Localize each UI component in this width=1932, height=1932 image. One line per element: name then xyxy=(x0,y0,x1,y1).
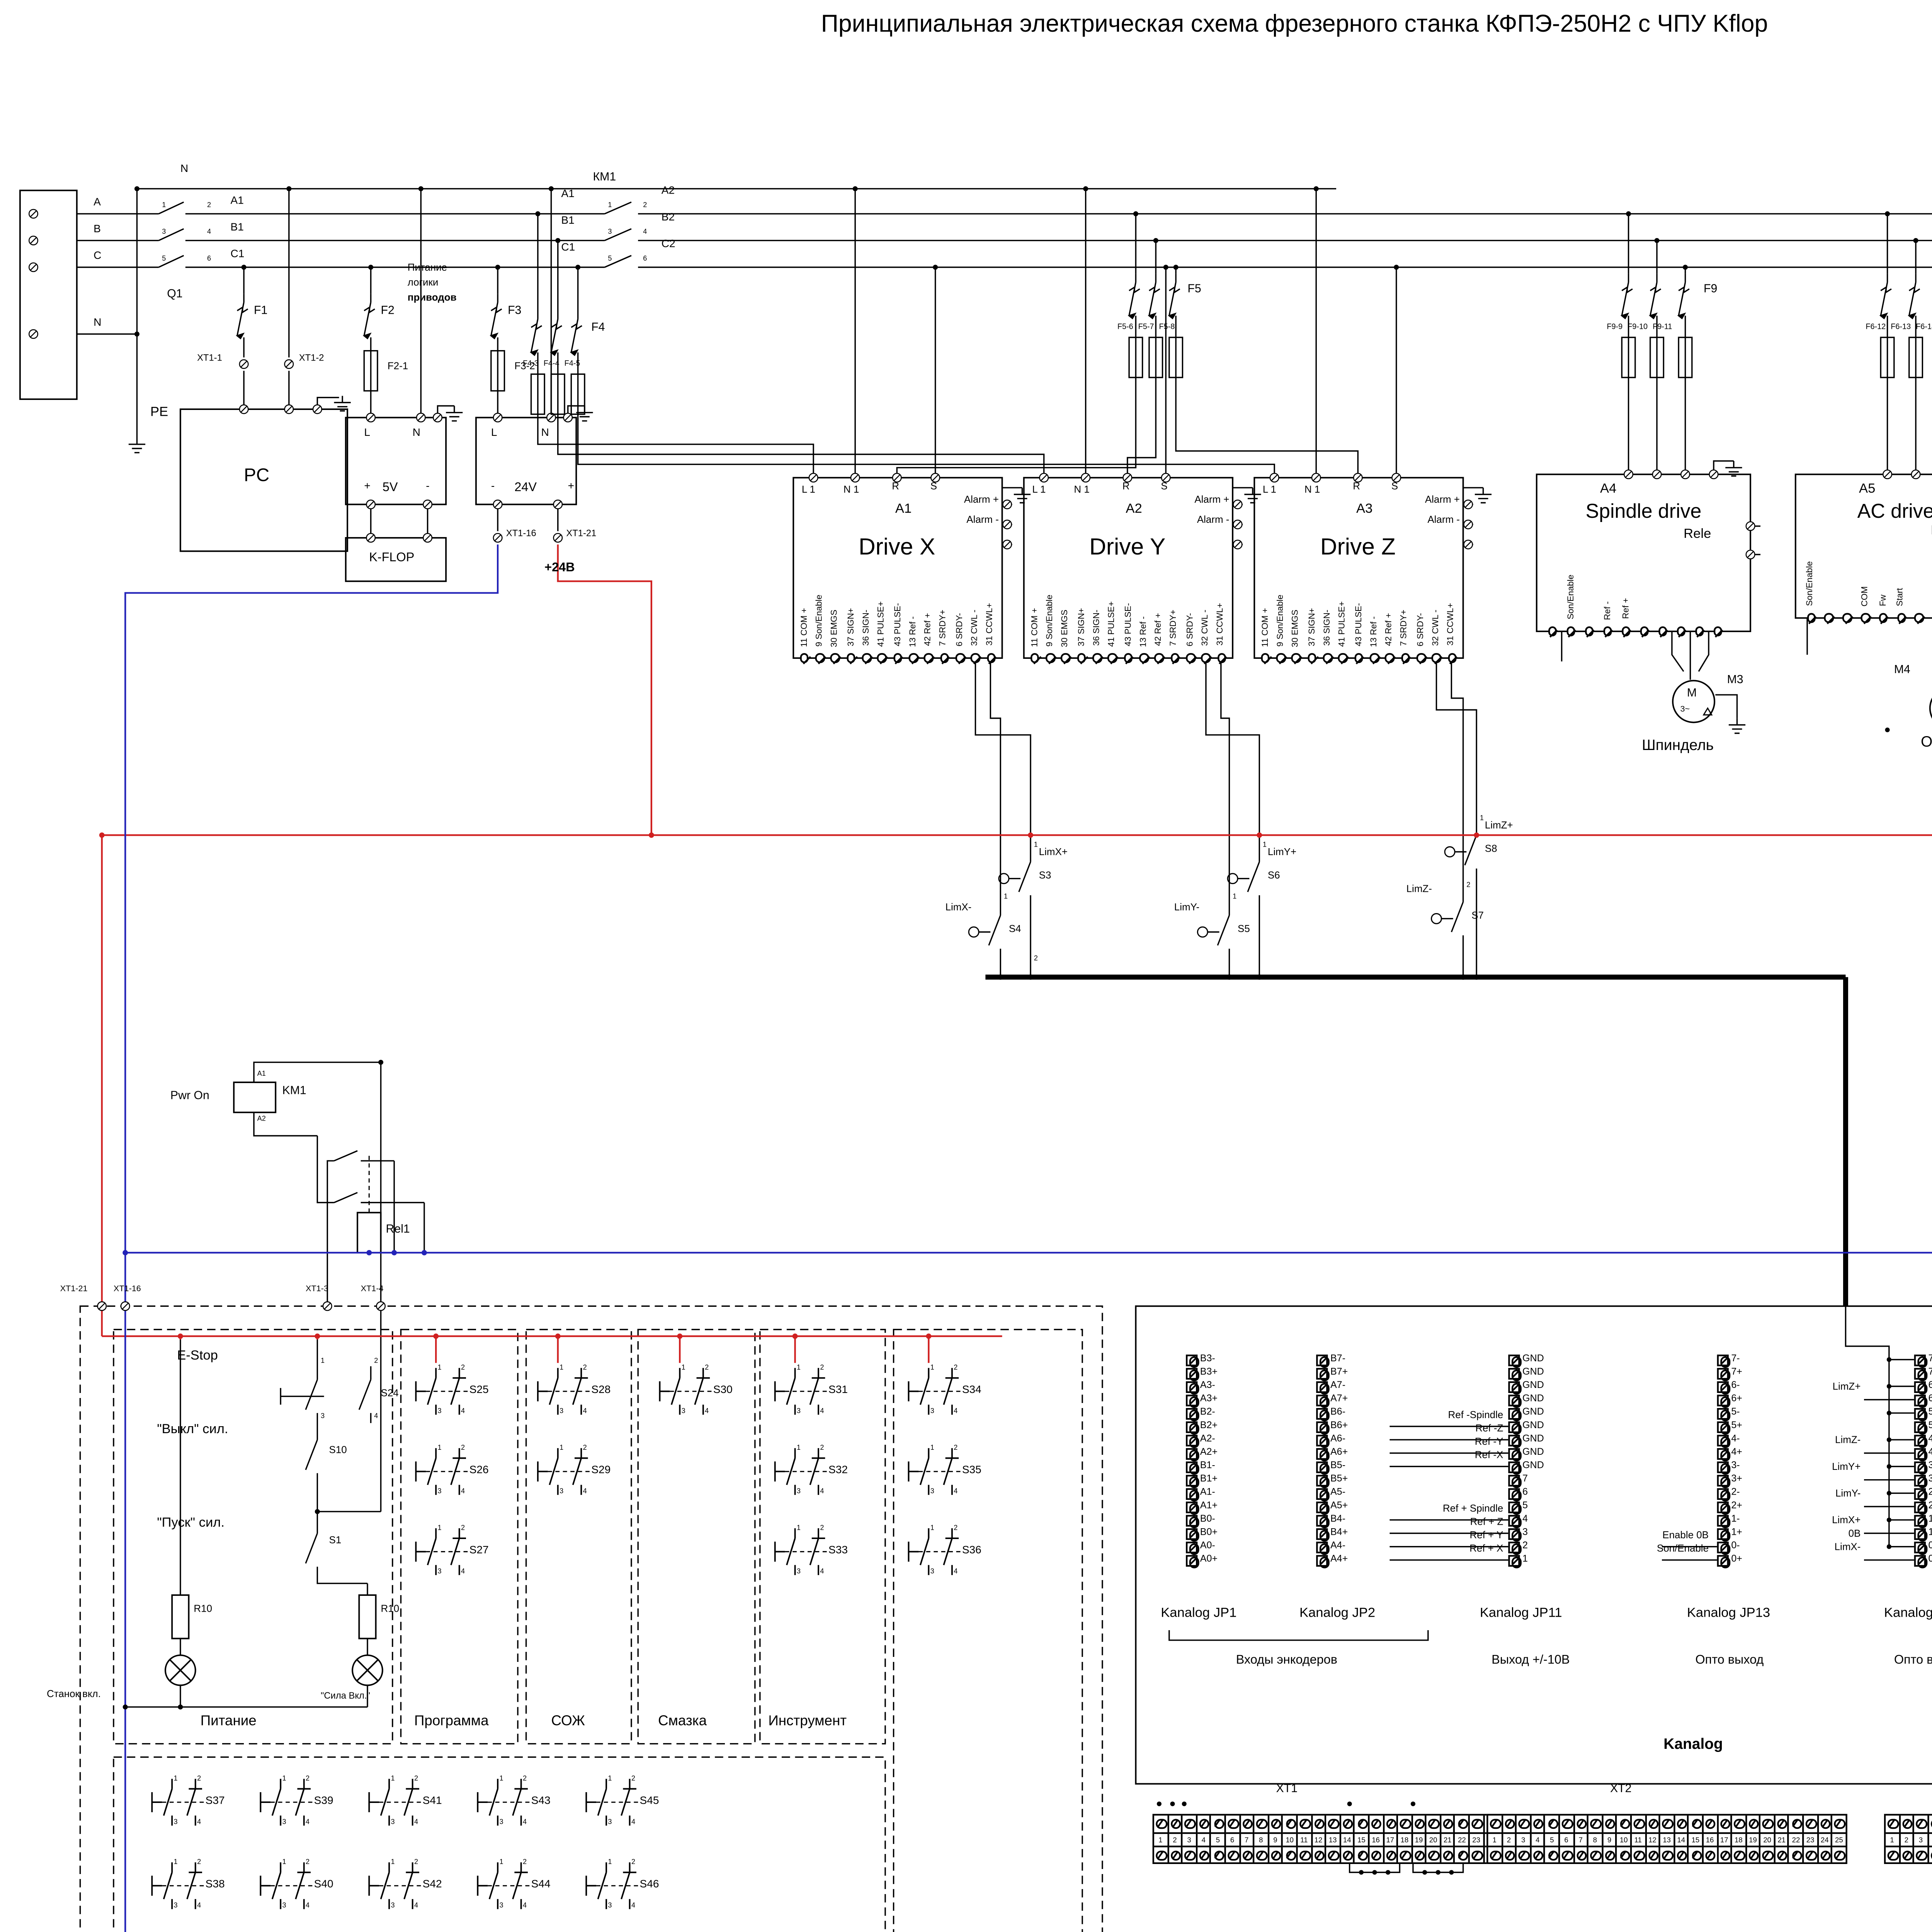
screw-terminal-icon xyxy=(1717,1381,1729,1392)
xt-terminal-number: 5 xyxy=(1212,1833,1225,1847)
pin-number: 4 xyxy=(583,1486,587,1495)
panel-button: 1 2 3 4 S34 xyxy=(904,1363,977,1420)
xt3-strip: 1 2 3 4 5 6 7 8 9 10 11 12 13 14 15 16 1… xyxy=(1884,1814,1932,1864)
screw-terminal-icon xyxy=(1316,1381,1328,1392)
jp-pin-label: B6- xyxy=(1330,1408,1345,1418)
jp-pin-row: 5- xyxy=(1717,1406,1742,1420)
q1-label: Q1 xyxy=(167,289,182,301)
jp-pin-label: 7 xyxy=(1522,1475,1528,1485)
terminal-icon xyxy=(1155,654,1164,663)
jp-pin-row: GND xyxy=(1508,1406,1544,1420)
drive-x-designator: A1 xyxy=(895,503,912,517)
terminal-icon xyxy=(1825,614,1834,623)
pin-number: 2 xyxy=(643,202,647,209)
jp-pin-label: 6- xyxy=(1731,1381,1740,1391)
drive-pin-label: 42 Ref + xyxy=(1385,613,1395,646)
drive-pin xyxy=(1910,485,1929,618)
pin-number: 3 xyxy=(391,1817,395,1826)
jp-pin-row: GND xyxy=(1508,1366,1544,1380)
terminal-icon xyxy=(862,654,871,663)
fuse-label: F4-4 xyxy=(544,359,560,367)
motor-type: 3~ xyxy=(1680,706,1690,715)
limy-minus-label: LimY- xyxy=(1174,904,1199,914)
pin-number: 1 xyxy=(391,1857,395,1866)
lamp-right-caption: "Сила Вкл." xyxy=(321,1694,370,1703)
terminal-icon xyxy=(955,654,964,663)
jp-pin-label: 4+ xyxy=(1731,1448,1742,1458)
jp-pin-row: A0+ xyxy=(1186,1553,1218,1567)
jp-pin-label: 5+ xyxy=(1731,1422,1742,1432)
jp-pin-row: 6- xyxy=(1717,1379,1742,1393)
ref-minus-x-label: Ref -X xyxy=(1386,1451,1503,1462)
screw-terminal-icon xyxy=(1790,1816,1803,1833)
fuse-label: F4-5 xyxy=(565,359,580,367)
screw-terminal-icon xyxy=(1717,1447,1729,1459)
f6-fuse-labels: F6-12 F6-13 F6-14 xyxy=(1866,322,1932,331)
pin-number: 3 xyxy=(682,1406,685,1415)
jp-pin-label: B2- xyxy=(1200,1408,1215,1418)
screw-terminal-icon xyxy=(1269,1816,1282,1833)
pin-number: 2 xyxy=(1034,956,1038,963)
screw-terminal-icon xyxy=(1818,1847,1831,1862)
pin-number: 6 xyxy=(643,255,647,263)
drive-pin xyxy=(1653,498,1672,631)
xt-terminal-number: 16 xyxy=(1704,1833,1716,1847)
xt-terminal-cell: 18 xyxy=(1732,1816,1747,1862)
xt-terminal-cell: 6 xyxy=(1226,1816,1240,1862)
jp-pin-label: A0- xyxy=(1200,1542,1215,1552)
screw-terminal-icon xyxy=(1717,1527,1729,1539)
drive-pin: 31 CCWL+ xyxy=(1214,524,1229,658)
ref-minus-spindle-label: Ref -Spindle xyxy=(1386,1412,1503,1422)
psu5-l-label: L xyxy=(364,429,370,440)
jp-pin-label: B5- xyxy=(1330,1461,1345,1471)
xt-terminal-cell: 19 xyxy=(1413,1816,1427,1862)
screw-terminal-icon xyxy=(1886,1816,1898,1833)
f4-fuse-labels: F4-3 F4-4 F4-5 xyxy=(523,359,580,367)
screw-terminal-icon xyxy=(1747,1847,1759,1862)
xt-terminal-number: 11 xyxy=(1632,1833,1645,1847)
drive-pin-label: 36 SIGN- xyxy=(1323,610,1333,646)
jp-pin-label: B3+ xyxy=(1200,1368,1218,1378)
xt-terminal-cell: 19 xyxy=(1747,1816,1761,1862)
drive-pin-label: 6 SRDY- xyxy=(955,613,965,646)
screw-terminal-icon xyxy=(1283,1847,1296,1862)
drive-pin-label: 36 SIGN- xyxy=(1092,610,1102,646)
screw-terminal-icon xyxy=(1717,1420,1729,1432)
jp-pin-row: A3- xyxy=(1186,1379,1218,1393)
screw-terminal-icon xyxy=(1316,1501,1328,1512)
wire-a2-label: A2 xyxy=(662,187,675,198)
button-designator: S33 xyxy=(828,1545,848,1556)
panel-button: 1 2 3 4 S46 xyxy=(581,1857,655,1914)
jp-pin-row: GND xyxy=(1508,1446,1544,1460)
pin-number: 1 xyxy=(174,1857,178,1866)
drive-pin-label: Son/Enable xyxy=(1806,561,1816,606)
xt-terminal-cell: 10 xyxy=(1617,1816,1632,1862)
ref-minus-y-label: Ref -Y xyxy=(1386,1438,1503,1449)
screw-terminal-icon xyxy=(1531,1847,1544,1862)
psu5-minus-label: - xyxy=(426,483,429,494)
terminal-icon xyxy=(815,654,825,663)
panel-button: 1 2 3 4 S31 xyxy=(770,1363,844,1420)
xt-terminal-cell: 21 xyxy=(1775,1816,1789,1862)
panel-button: 1 2 3 4 S35 xyxy=(904,1443,977,1500)
jp-pin-label: 1+ xyxy=(1731,1528,1742,1538)
screw-terminal-icon xyxy=(1717,1407,1729,1419)
drive-pin: Son/Enable xyxy=(1562,498,1580,631)
jp-pin-label: 3+ xyxy=(1731,1475,1742,1485)
jp-pin-row: 6 xyxy=(1508,1486,1544,1500)
xt1-strip-title: XT1 xyxy=(1276,1784,1298,1796)
drive-pin-label: Ref + xyxy=(1621,599,1631,619)
rel1-label: Rel1 xyxy=(386,1224,410,1236)
screw-terminal-icon xyxy=(1186,1501,1197,1512)
jp-pin-label: B4- xyxy=(1330,1515,1345,1525)
pin-number: 2 xyxy=(306,1857,310,1866)
screw-terminal-icon xyxy=(1470,1816,1483,1833)
button-designator: S39 xyxy=(314,1796,333,1807)
pin-number: 4 xyxy=(583,1406,587,1415)
jp-pin-row: 3+ xyxy=(1914,1473,1932,1487)
section-smazka-label: Смазка xyxy=(658,1714,707,1729)
spindle-designator: A4 xyxy=(1600,483,1616,497)
drive-pin: 41 PULSE+ xyxy=(874,524,890,658)
xt-terminal-number: 3 xyxy=(1517,1833,1530,1847)
lamp-left-caption: Станок вкл. xyxy=(47,1690,101,1701)
screw-terminal-icon xyxy=(1503,1816,1515,1833)
screw-terminal-icon xyxy=(1186,1381,1197,1392)
screw-terminal-icon xyxy=(1914,1420,1926,1432)
fuse-label: F6-13 xyxy=(1891,322,1911,331)
xt-terminal-number: 13 xyxy=(1660,1833,1673,1847)
pe-label: PE xyxy=(150,406,168,420)
pin-number: 1 xyxy=(1004,894,1008,901)
drive-pin-label: 32 CWL - xyxy=(971,610,981,646)
xt-terminal-cell: 4 xyxy=(1531,1816,1546,1862)
drive-pin-label: 31 CCWL+ xyxy=(1447,604,1457,646)
xt-terminal-cell: 12 xyxy=(1312,1816,1327,1862)
screw-terminal-icon xyxy=(1732,1816,1745,1833)
pusk-sil-label: "Пуск" сил. xyxy=(157,1517,224,1531)
screw-terminal-icon xyxy=(1761,1847,1774,1862)
xt-terminal-number: 2 xyxy=(1168,1833,1181,1847)
jp-pin-label: 7- xyxy=(1731,1355,1740,1365)
xt1-strip: 1 2 3 4 5 6 7 8 9 10 11 12 13 14 15 16 1… xyxy=(1153,1814,1513,1864)
jp-pin-label: B1+ xyxy=(1200,1475,1218,1485)
screw-terminal-icon xyxy=(1369,1816,1382,1833)
pin-number: 3 xyxy=(282,1817,286,1826)
encoders-caption: Входы энкодеров xyxy=(1236,1653,1337,1667)
jp-pin-label: 5- xyxy=(1731,1408,1740,1418)
xt-terminal-number: 24 xyxy=(1818,1833,1831,1847)
xt-terminal-cell: 17 xyxy=(1384,1816,1398,1862)
pin-number: 4 xyxy=(631,1817,635,1826)
jp-pin-label: 2- xyxy=(1928,1488,1932,1498)
pin-number: 3 xyxy=(930,1567,934,1575)
jp-pin-row: A2+ xyxy=(1186,1446,1218,1460)
section-instrument-label: Инструмент xyxy=(768,1714,847,1729)
xt-terminal-cell: 7 xyxy=(1240,1816,1255,1862)
fuse-label: F5-6 xyxy=(1117,322,1133,331)
xt-terminal-cell: 22 xyxy=(1456,1816,1470,1862)
xt-terminal-cell: 9 xyxy=(1603,1816,1617,1862)
drive-pin: 43 PULSE- xyxy=(1121,524,1136,658)
drive-pin: 36 SIGN- xyxy=(1320,524,1335,658)
pin-number: 2 xyxy=(631,1857,635,1866)
xt-terminal-number: 17 xyxy=(1718,1833,1731,1847)
screw-terminal-icon xyxy=(1508,1407,1520,1419)
screw-terminal-icon xyxy=(1413,1847,1425,1862)
jp-pin-label: GND xyxy=(1522,1448,1544,1458)
drive-pin: 9 Son/Enable xyxy=(1043,524,1058,658)
jp-pin-label: A4+ xyxy=(1330,1555,1348,1565)
xt-terminal-cell: 24 xyxy=(1818,1816,1833,1862)
xt-terminal-number: 15 xyxy=(1355,1833,1368,1847)
screw-terminal-icon xyxy=(1298,1847,1310,1862)
screw-terminal-icon xyxy=(1316,1554,1328,1566)
drive-top-pin: R xyxy=(892,483,899,493)
screw-terminal-icon xyxy=(1212,1816,1225,1833)
fuse-label: F6-14 xyxy=(1916,322,1932,331)
terminal-icon xyxy=(1092,654,1102,663)
jp-pin-row: B3+ xyxy=(1186,1366,1218,1380)
drive-pin-label: Ref - xyxy=(1603,601,1613,620)
jp1-title: Kanalog JP1 xyxy=(1161,1607,1236,1621)
screw-terminal-icon xyxy=(1915,1816,1927,1833)
phase-c-label: C xyxy=(94,252,101,264)
jp-pin-row: 3- xyxy=(1717,1460,1742,1473)
xt1-21-label: XT1-21 xyxy=(566,531,596,541)
jp-pin-row: B4+ xyxy=(1316,1527,1348,1540)
s5-label: S5 xyxy=(1238,925,1250,936)
pin-number: 2 xyxy=(705,1363,709,1371)
jp-pin-row: A4+ xyxy=(1316,1553,1348,1567)
screw-terminal-icon xyxy=(1632,1816,1645,1833)
pin-number: 2 xyxy=(954,1363,957,1371)
button-designator: S26 xyxy=(469,1465,489,1476)
jp15-connector: 7- 7+ 6- 6+ 5- 5+ 4- 4+ 3- 3+ 2- 2+ 1- 1… xyxy=(1914,1353,1932,1566)
r10-left-label: R10 xyxy=(194,1605,212,1616)
jp-pin-label: 4- xyxy=(1731,1435,1740,1445)
jp-pin-label: 3- xyxy=(1731,1461,1740,1471)
limy-plus-jp-label: LimY+ xyxy=(1781,1463,1861,1474)
drive-x-pins: 11 COM + 9 Son/Enable 30 EMGS 37 SIGN+ 3… xyxy=(797,524,999,658)
xt-terminal-cell: 2 xyxy=(1900,1816,1914,1862)
jp-pin-label: GND xyxy=(1522,1355,1544,1365)
jp-pin-label: B6+ xyxy=(1330,1422,1348,1432)
jp-pin-row: 1- xyxy=(1914,1513,1932,1527)
screw-terminal-icon xyxy=(1508,1541,1520,1553)
fuse-label: F4-3 xyxy=(523,359,539,367)
pin-number: 2 xyxy=(306,1774,310,1782)
drive-pin-label: 13 Ref - xyxy=(1139,616,1149,646)
wire-b2-label: B2 xyxy=(662,214,675,225)
xt-terminal-number: 4 xyxy=(1531,1833,1544,1847)
jp-pin-label: 2 xyxy=(1522,1542,1528,1552)
pin-number: 4 xyxy=(523,1901,527,1909)
drive-top-pin: R xyxy=(1122,483,1130,493)
wire-c1-label: C1 xyxy=(561,244,575,255)
jp-pin-label: 4- xyxy=(1928,1435,1932,1445)
screw-terminal-icon xyxy=(1914,1447,1926,1459)
drive-top-pin: S xyxy=(1161,483,1167,493)
f4-label: F4 xyxy=(591,322,605,335)
jp-pin-label: GND xyxy=(1522,1381,1544,1391)
drive-pin-label: 7 SRDY+ xyxy=(1400,610,1410,646)
ref-minus-z-label: Ref -Z xyxy=(1386,1425,1503,1435)
wiring-layer xyxy=(0,0,1932,1932)
drive-pin-label: 42 Ref + xyxy=(1155,613,1165,646)
out10v-caption: Выход +/-10В xyxy=(1492,1653,1570,1667)
button-designator: S46 xyxy=(640,1879,659,1891)
screw-terminal-icon xyxy=(1503,1847,1515,1862)
panel-button: 1 2 3 4 S40 xyxy=(255,1857,329,1914)
limz-minus-label: LimZ- xyxy=(1406,885,1432,896)
xt-terminal-cell: 11 xyxy=(1298,1816,1312,1862)
xt1-16-label: XT1-16 xyxy=(506,531,536,541)
jp-pin-row: 7- xyxy=(1717,1353,1742,1366)
jp-pin-row: B4- xyxy=(1316,1513,1348,1527)
pin-number: 2 xyxy=(631,1774,635,1782)
pin-number: 3 xyxy=(438,1406,442,1415)
pin-number: 1 xyxy=(560,1443,563,1452)
xt1-16-entry-label: XT1-16 xyxy=(114,1286,141,1295)
screw-terminal-icon xyxy=(1197,1816,1210,1833)
pin-number: 4 xyxy=(306,1901,310,1909)
screw-terminal-icon xyxy=(1186,1407,1197,1419)
screw-terminal-icon xyxy=(1441,1847,1454,1862)
pin-number: 2 xyxy=(374,1358,378,1365)
jp-pin-row: A7+ xyxy=(1316,1393,1348,1406)
screw-terminal-icon xyxy=(1283,1816,1296,1833)
pin-number: 1 xyxy=(438,1523,442,1532)
jp-pin-row: A5- xyxy=(1316,1486,1348,1500)
pin-number: 5 xyxy=(162,255,166,263)
jp-pin-label: 5 xyxy=(1522,1502,1528,1512)
drive-pin: 11 COM + xyxy=(1258,524,1273,658)
jp-pin-row: B0- xyxy=(1186,1513,1218,1527)
xt-terminal-number: 12 xyxy=(1312,1833,1325,1847)
screw-terminal-icon xyxy=(1316,1394,1328,1405)
screw-terminal-icon xyxy=(1588,1816,1601,1833)
screw-terminal-icon xyxy=(1298,1816,1310,1833)
jp-pin-row: B0+ xyxy=(1186,1527,1218,1540)
screw-terminal-icon xyxy=(1717,1474,1729,1486)
xt-terminal-cell: 1 xyxy=(1886,1816,1900,1862)
pin-number: 4 xyxy=(820,1567,824,1575)
pin-number: 1 xyxy=(282,1857,286,1866)
xt-terminal-cell: 6 xyxy=(1560,1816,1574,1862)
pin-number: 2 xyxy=(820,1523,824,1532)
button-designator: S27 xyxy=(469,1545,489,1556)
button-designator: S30 xyxy=(713,1384,733,1396)
screw-terminal-icon xyxy=(1603,1847,1616,1862)
jp-pin-row: B5+ xyxy=(1316,1473,1348,1487)
drive-pin-label: Fw xyxy=(1878,595,1888,606)
jp-pin-label: 1- xyxy=(1928,1515,1932,1525)
drive-pin-label: 42 Ref + xyxy=(924,613,934,646)
drive-pin: 36 SIGN- xyxy=(1089,524,1105,658)
terminal-icon xyxy=(1432,654,1441,663)
xt-terminal-number: 2 xyxy=(1503,1833,1515,1847)
jp-pin-row: B5- xyxy=(1316,1460,1348,1473)
drive-top-pin: N 1 xyxy=(1304,486,1320,497)
screw-terminal-icon xyxy=(1804,1816,1817,1833)
xt-terminal-cell: 8 xyxy=(1588,1816,1603,1862)
pin-number: 1 xyxy=(797,1443,801,1452)
xt-terminal-cell: 23 xyxy=(1470,1816,1484,1862)
psu24-n-label: N xyxy=(541,429,549,440)
terminal-icon xyxy=(1139,654,1148,663)
limz-plus-jp-label: LimZ+ xyxy=(1781,1383,1861,1393)
drive-pin: 9 Son/Enable xyxy=(812,524,828,658)
estop-label: E-Stop xyxy=(177,1350,218,1364)
pin-number: 1 xyxy=(1034,842,1038,849)
jp-pin-label: A6- xyxy=(1330,1435,1345,1445)
screw-terminal-icon xyxy=(1508,1394,1520,1405)
pin-number: 4 xyxy=(820,1406,824,1415)
drive-pin: 37 SIGN+ xyxy=(1304,524,1320,658)
jp-pin-label: 1- xyxy=(1731,1515,1740,1525)
screw-terminal-icon xyxy=(1914,1407,1926,1419)
pin-number: 4 xyxy=(461,1406,465,1415)
f2-1-fuse-label: F2-1 xyxy=(388,362,408,373)
panel-button: 1 2 3 4 S25 xyxy=(411,1363,484,1420)
jp-pin-row: 2 xyxy=(1508,1540,1544,1553)
screw-terminal-icon xyxy=(1617,1847,1630,1862)
schematic-canvas: Принципиальная электрическая схема фрезе… xyxy=(0,0,1932,1932)
jp-pin-label: 1 xyxy=(1522,1555,1528,1565)
screw-terminal-icon xyxy=(1660,1816,1673,1833)
jp-pin-row: 5+ xyxy=(1914,1420,1932,1433)
xt-terminal-number: 20 xyxy=(1427,1833,1440,1847)
pin-number: 3 xyxy=(162,229,166,236)
drive-top-pin: L 1 xyxy=(1032,486,1046,497)
xt-terminal-number: 1 xyxy=(1886,1833,1898,1847)
km1-coil-label: KM1 xyxy=(282,1086,306,1098)
psu24-minus-label: - xyxy=(491,483,495,494)
xt-terminal-cell: 15 xyxy=(1689,1816,1703,1862)
jp-pin-label: 6- xyxy=(1928,1381,1932,1391)
screw-terminal-icon xyxy=(1488,1847,1501,1862)
pin-number: 4 xyxy=(197,1817,201,1826)
panel-button: 1 2 3 4 S43 xyxy=(473,1774,546,1831)
xt-terminal-cell: 1 xyxy=(1488,1816,1502,1862)
screw-terminal-icon xyxy=(1186,1487,1197,1499)
pin-number: 1 xyxy=(438,1443,442,1452)
drive-pin: 36 SIGN- xyxy=(859,524,874,658)
xt-terminal-cell: 14 xyxy=(1675,1816,1689,1862)
section-power-label: Питание xyxy=(201,1714,257,1729)
pin-number: 4 xyxy=(197,1901,201,1909)
drive-pin-label: 31 CCWL+ xyxy=(986,604,996,646)
screw-terminal-icon xyxy=(1747,1816,1759,1833)
screw-terminal-icon xyxy=(1186,1527,1197,1539)
jp-pin-label: 3- xyxy=(1928,1461,1932,1471)
pin-number: 4 xyxy=(954,1486,957,1495)
jp-pin-row: 5 xyxy=(1508,1500,1544,1514)
xt-terminal-number: 6 xyxy=(1560,1833,1573,1847)
pin-number: 1 xyxy=(560,1363,563,1371)
drive-pin-label: 11 COM + xyxy=(1030,607,1040,646)
xt-terminal-number: 7 xyxy=(1240,1833,1253,1847)
drive-top-pin: N 1 xyxy=(1074,486,1089,497)
drive-pin xyxy=(1580,498,1599,631)
terminal-icon xyxy=(1861,614,1870,623)
drive-pin-label: 6 SRDY- xyxy=(1416,613,1426,646)
pin-number: 1 xyxy=(682,1363,685,1371)
